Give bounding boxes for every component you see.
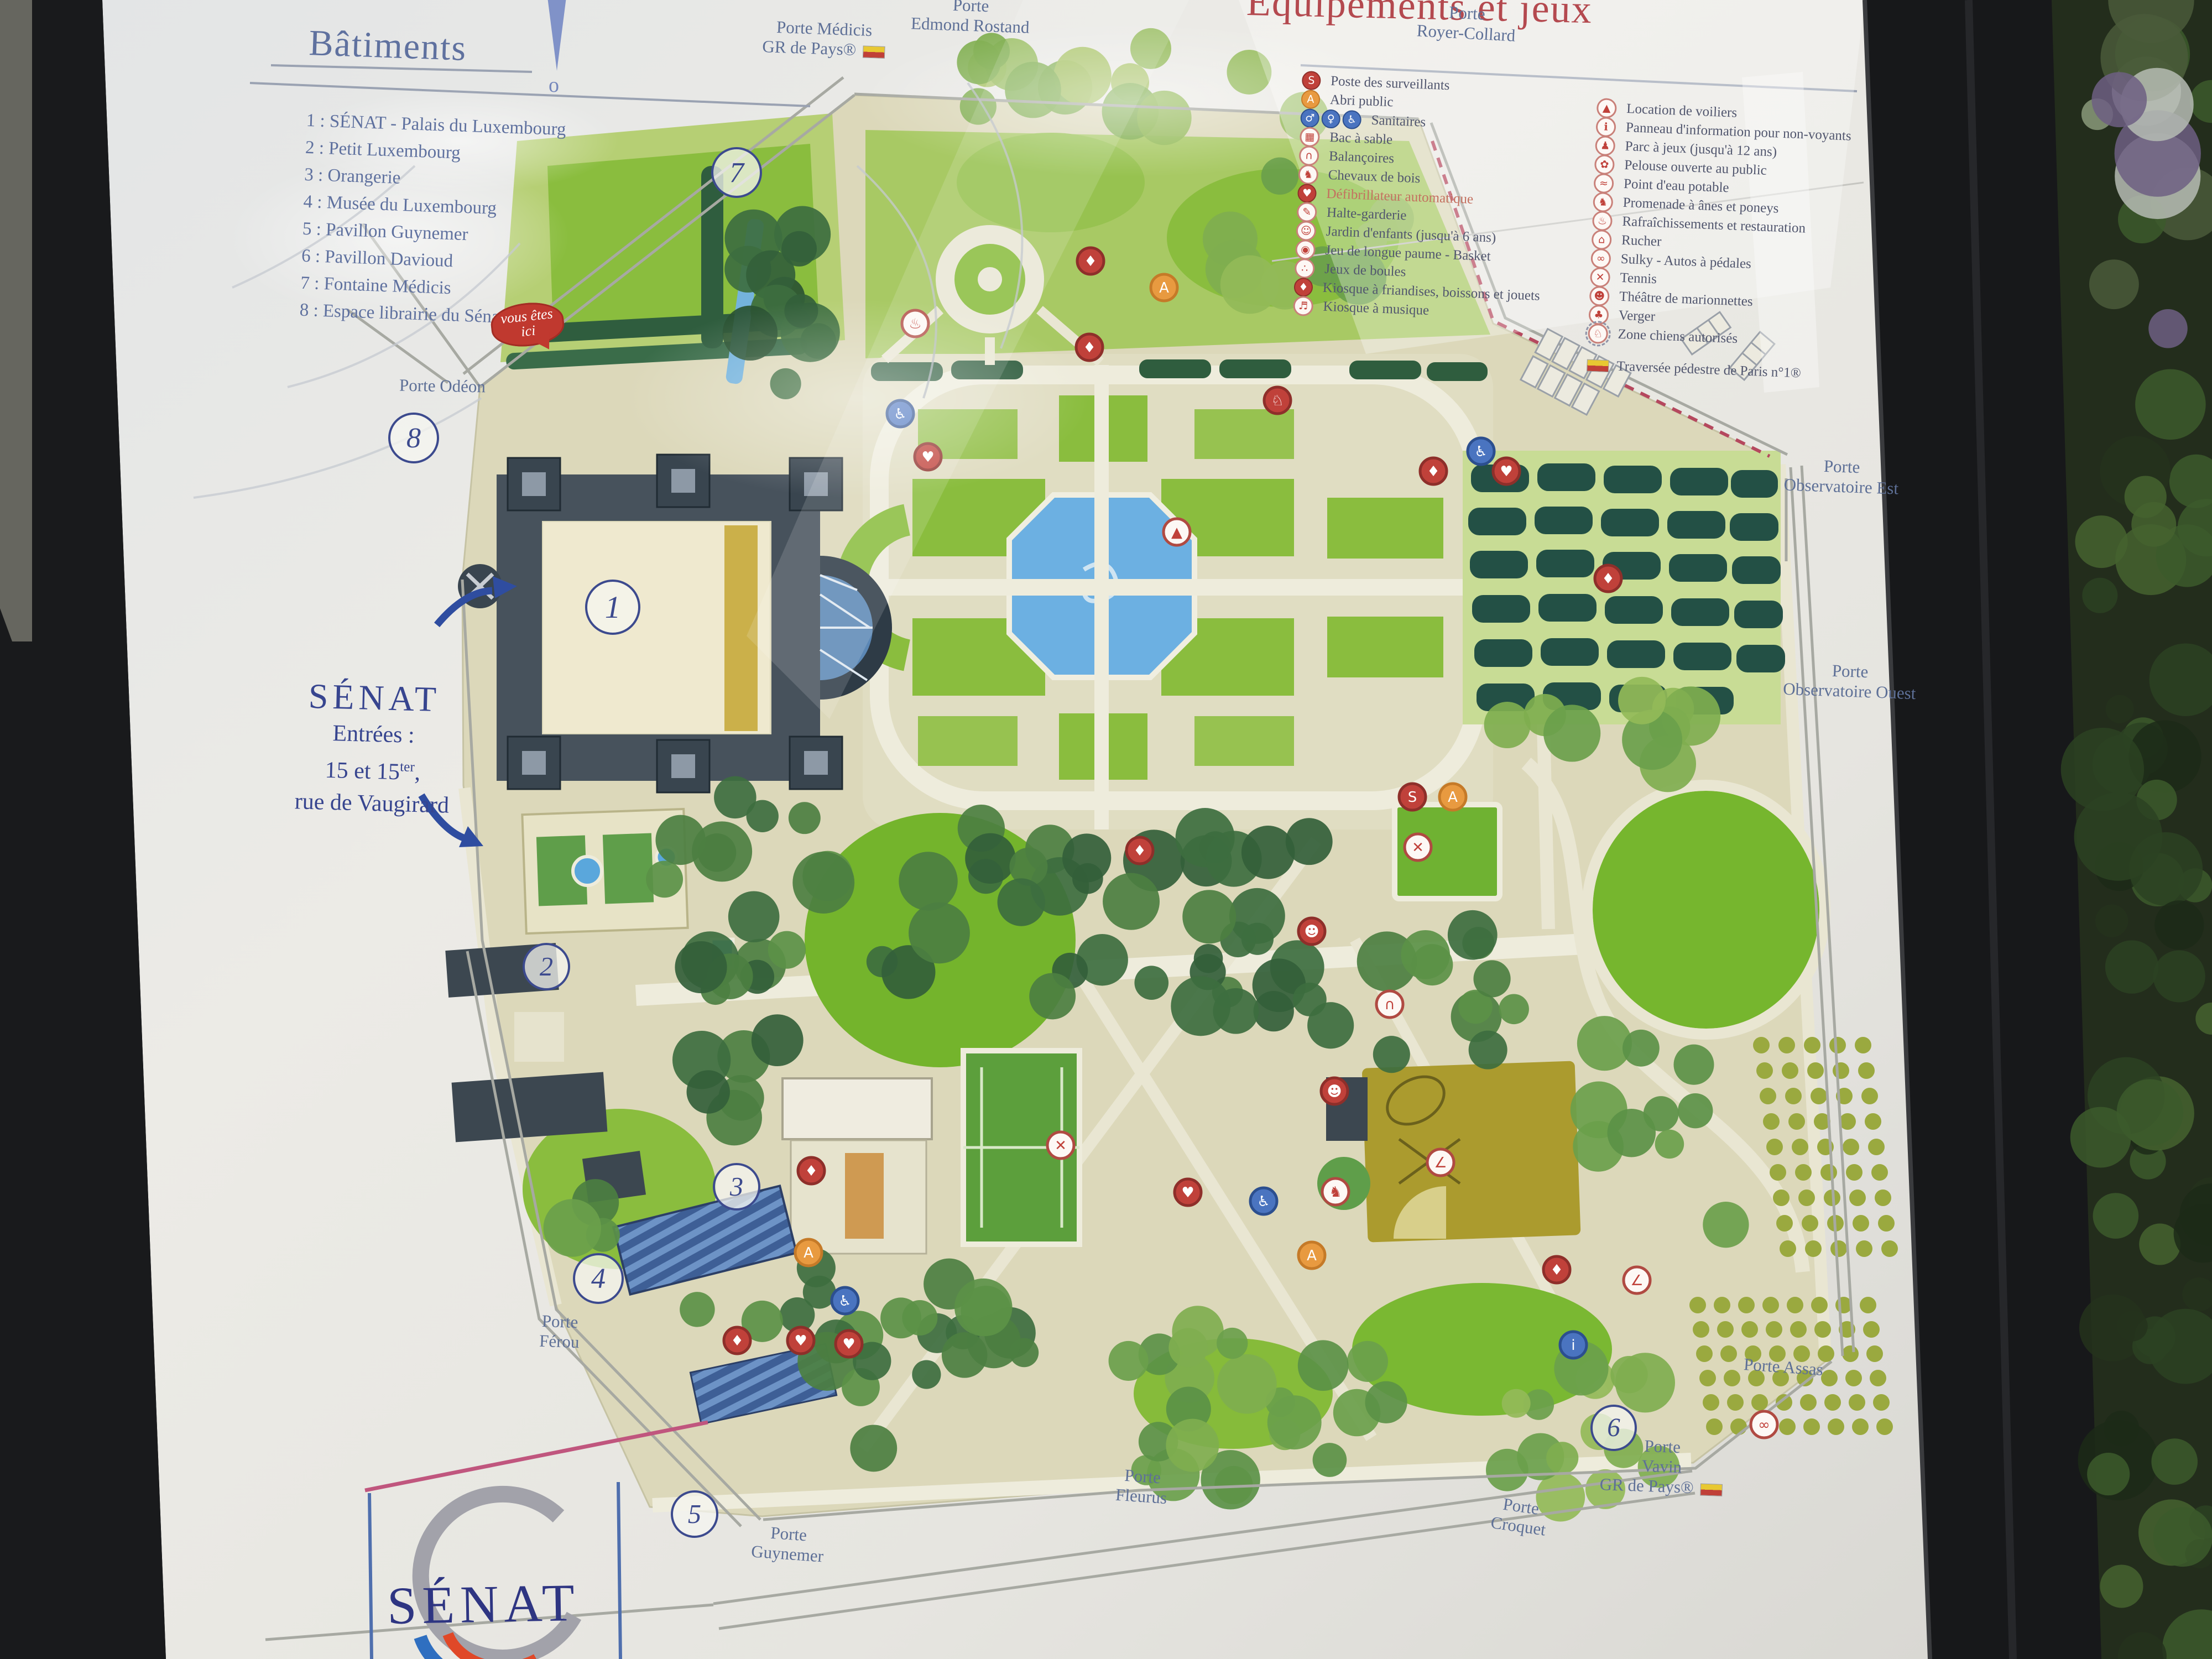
legend-label: Verger bbox=[1618, 308, 1655, 325]
defibrillator-marker: ♥ bbox=[787, 1327, 814, 1354]
sulky-icon: ∞ bbox=[1590, 248, 1611, 269]
svg-text:♦: ♦ bbox=[1083, 340, 1095, 356]
sailboat-rental-marker: ▲ bbox=[1164, 519, 1190, 545]
svg-text:♥: ♥ bbox=[842, 1336, 855, 1353]
building-number-7: 7 bbox=[711, 147, 762, 198]
kiosk-marker: ♦ bbox=[798, 1157, 825, 1184]
building-number-6: 6 bbox=[1590, 1405, 1637, 1451]
svg-text:∠: ∠ bbox=[1630, 1272, 1643, 1289]
svg-text:♿: ♿ bbox=[838, 1293, 851, 1310]
building-number-4: 4 bbox=[573, 1253, 624, 1304]
svg-text:♿: ♿ bbox=[1474, 444, 1487, 460]
svg-text:♘: ♘ bbox=[1271, 393, 1284, 409]
legend-label: Halte-garderie bbox=[1327, 205, 1407, 224]
sanitaires-icon: ♿ bbox=[1342, 110, 1361, 129]
eau-potable-icon: ≈ bbox=[1593, 173, 1614, 194]
equipements-column-left: SPoste des surveillantsAAbri public♂♀♿Sa… bbox=[1293, 71, 1548, 325]
jardin-enfants-icon: ☺ bbox=[1296, 221, 1316, 241]
svg-text:♿: ♿ bbox=[1257, 1193, 1270, 1210]
sulky-marker: ∞ bbox=[1751, 1411, 1777, 1438]
kiosk-marker: ♦ bbox=[1077, 248, 1104, 274]
porte-fleurus-label: PorteFleurus bbox=[1115, 1465, 1169, 1508]
legend-label: Kiosque à musique bbox=[1323, 299, 1430, 319]
svg-text:A: A bbox=[1307, 1248, 1317, 1264]
building-number-8: 8 bbox=[388, 413, 439, 463]
tennis-icon: ✕ bbox=[1590, 267, 1610, 288]
legend-label: Rucher bbox=[1621, 233, 1662, 250]
svg-text:♦: ♦ bbox=[1550, 1262, 1563, 1279]
legend-label: Sanitaires bbox=[1371, 113, 1426, 131]
kiosk-marker: ♦ bbox=[1595, 565, 1621, 592]
shelter-marker: A bbox=[795, 1239, 822, 1266]
gr-flag-icon bbox=[1587, 359, 1609, 373]
marionnettes-icon: ☻ bbox=[1589, 286, 1610, 306]
sign-photo: ♨♿♥♦A♦♘♿♦♥▲♦SA♦✕☻∩✕☻♞∠♦A♿♥♦♥♥♿A♦∠i∞ bbox=[0, 0, 2212, 1659]
rafraichissements-icon: ♨ bbox=[1592, 211, 1613, 231]
gr-flag-icon bbox=[863, 45, 885, 58]
halte-garderie-icon: ✎ bbox=[1297, 202, 1317, 222]
info-panel-marker: i bbox=[1560, 1332, 1587, 1358]
porte-royer-collard-label: PorteRoyer-Collard bbox=[1416, 1, 1517, 45]
svg-text:♦: ♦ bbox=[1427, 463, 1439, 480]
rucher-icon: ⌂ bbox=[1592, 229, 1612, 250]
legend-label: Zone chiens autorisés bbox=[1618, 327, 1738, 347]
longue-paume-marker: ✕ bbox=[1405, 834, 1431, 860]
legend-label: Tennis bbox=[1620, 270, 1657, 288]
surveillants-marker: S bbox=[1399, 784, 1426, 810]
porte-observatoire-est-label: PorteObservatoire Est bbox=[1783, 455, 1900, 498]
building-number-5: 5 bbox=[671, 1490, 718, 1538]
porte-observatoire-ouest-label: PorteObservatoire Ouest bbox=[1783, 659, 1917, 703]
legend-label: Abri public bbox=[1329, 92, 1394, 110]
voiliers-icon: ▲ bbox=[1597, 98, 1617, 118]
equipements-column-right: ▲Location de voiliersℹPanneau d'informat… bbox=[1587, 98, 1853, 384]
svg-text:▲: ▲ bbox=[1171, 524, 1182, 541]
kiosk-marker: ♦ bbox=[1076, 334, 1103, 361]
porte-guynemer-label: PorteGuynemer bbox=[750, 1522, 826, 1567]
batiments-legend: Bâtiments 1 : SÉNAT - Palais du Luxembou… bbox=[299, 22, 570, 333]
svg-text:A: A bbox=[1448, 789, 1458, 806]
svg-text:A: A bbox=[1159, 280, 1169, 296]
defibrillateur-icon: ♥ bbox=[1297, 184, 1317, 203]
shelter-marker: A bbox=[1298, 1242, 1325, 1269]
porte-edmond-rostand-label: PorteEdmond Rostand bbox=[911, 0, 1031, 38]
legend-label: Poste des surveillants bbox=[1331, 74, 1450, 93]
puppet-marker: ☻ bbox=[1298, 918, 1325, 945]
svg-text:☻: ☻ bbox=[1304, 924, 1319, 940]
surveillants-icon: S bbox=[1302, 71, 1321, 90]
seesaw-marker: ∠ bbox=[1427, 1149, 1454, 1176]
anes-poneys-icon: ♞ bbox=[1593, 192, 1613, 212]
svg-text:☻: ☻ bbox=[1327, 1083, 1342, 1100]
svg-text:♦: ♦ bbox=[731, 1333, 743, 1349]
legend-label: Balançoires bbox=[1329, 149, 1395, 167]
tennis-marker: ✕ bbox=[1047, 1132, 1074, 1159]
pelouse-ouverte-icon: ✿ bbox=[1594, 154, 1615, 175]
svg-text:♦: ♦ bbox=[1601, 571, 1614, 587]
svg-text:✕: ✕ bbox=[1055, 1138, 1067, 1154]
defibrillator-marker: ♥ bbox=[1175, 1179, 1201, 1206]
sanitaires-marker: ♿ bbox=[832, 1287, 858, 1314]
kiosque-friandises-icon: ♦ bbox=[1293, 278, 1313, 297]
swings-marker: ∩ bbox=[1376, 991, 1403, 1018]
chevaux-de-bois-icon: ♞ bbox=[1298, 164, 1318, 185]
building-number-3: 3 bbox=[713, 1163, 760, 1211]
svg-text:S: S bbox=[1408, 789, 1417, 806]
zone-chiens-icon: ♘ bbox=[1588, 324, 1608, 344]
bac-a-sable-icon: ▦ bbox=[1300, 127, 1320, 147]
svg-text:♥: ♥ bbox=[1181, 1185, 1194, 1201]
legend-label: Jeux de boules bbox=[1324, 262, 1406, 280]
kiosk-marker: ♦ bbox=[1126, 837, 1153, 864]
defibrillator-marker: ♥ bbox=[836, 1331, 862, 1357]
senat-entrance-note: SÉNAT Entrées : 15 et 15ter, rue de Vaug… bbox=[228, 674, 519, 823]
kiosk-marker: ♦ bbox=[1543, 1256, 1570, 1283]
senat-logo-text: SÉNAT bbox=[387, 1572, 581, 1636]
kiosk-marker: ♦ bbox=[724, 1327, 750, 1354]
svg-text:♦: ♦ bbox=[1133, 843, 1146, 859]
gr-flag-icon bbox=[1700, 1483, 1723, 1496]
kiosk-marker: ♦ bbox=[1420, 458, 1447, 484]
svg-text:♥: ♥ bbox=[794, 1333, 807, 1349]
balancoires-icon: ∩ bbox=[1298, 145, 1319, 166]
svg-text:∞: ∞ bbox=[1758, 1417, 1770, 1433]
marionnettes-marker: ☻ bbox=[1321, 1078, 1348, 1104]
parc-a-jeux-icon: ♟ bbox=[1595, 135, 1615, 156]
legend-label: Bac à sable bbox=[1329, 130, 1393, 148]
jeux-de-boules-icon: ∴ bbox=[1295, 258, 1315, 279]
batiments-title: Bâtiments bbox=[308, 22, 569, 73]
shelter-marker: A bbox=[1151, 274, 1177, 301]
svg-text:i: i bbox=[1571, 1337, 1575, 1354]
abri-public-icon: A bbox=[1301, 90, 1320, 109]
svg-text:∠: ∠ bbox=[1434, 1155, 1447, 1171]
verger-icon: ♣ bbox=[1588, 305, 1609, 325]
porte-croquet-label: PorteCroquet bbox=[1490, 1493, 1550, 1540]
kiosque-musique-icon: ♬ bbox=[1293, 296, 1313, 316]
defibrillator-marker: ♥ bbox=[1493, 458, 1520, 484]
building-number-1: 1 bbox=[585, 580, 640, 635]
sanitaires-marker: ♿ bbox=[1250, 1188, 1277, 1214]
legend-label: Location de voiliers bbox=[1626, 101, 1738, 121]
porte-medicis-label: Porte MédicisGR de Pays® bbox=[762, 17, 886, 61]
sanitaires-marker: ♿ bbox=[1468, 438, 1494, 465]
compass-letter: o bbox=[549, 73, 559, 97]
legend-label: Chevaux de bois bbox=[1328, 168, 1421, 186]
svg-text:♦: ♦ bbox=[1084, 253, 1097, 270]
svg-text:A: A bbox=[804, 1245, 813, 1261]
legend-label: Point d'eau potable bbox=[1624, 176, 1730, 196]
building-number-2: 2 bbox=[523, 943, 570, 990]
svg-text:♦: ♦ bbox=[805, 1163, 817, 1180]
seesaw-marker: ∠ bbox=[1624, 1267, 1650, 1293]
senat-entrance-title: SÉNAT bbox=[231, 674, 519, 722]
shelter-marker: A bbox=[1439, 784, 1466, 810]
sanitaires-icon: ♂ bbox=[1300, 108, 1319, 128]
porte-odeon-label: Porte Odéon bbox=[399, 375, 486, 397]
svg-text:✕: ✕ bbox=[1412, 839, 1424, 856]
svg-text:♥: ♥ bbox=[1500, 463, 1512, 480]
porte-ferou-label: PorteFérou bbox=[539, 1311, 581, 1352]
carousel-marker: ♞ bbox=[1322, 1178, 1349, 1205]
panneau-non-voyants-icon: ℹ bbox=[1595, 117, 1616, 137]
longue-paume-icon: ◉ bbox=[1295, 239, 1316, 260]
svg-text:♞: ♞ bbox=[1329, 1184, 1342, 1201]
dog-zone-marker: ♘ bbox=[1264, 387, 1291, 414]
sanitaires-icon: ♀ bbox=[1321, 109, 1340, 128]
svg-text:∩: ∩ bbox=[1384, 997, 1395, 1013]
